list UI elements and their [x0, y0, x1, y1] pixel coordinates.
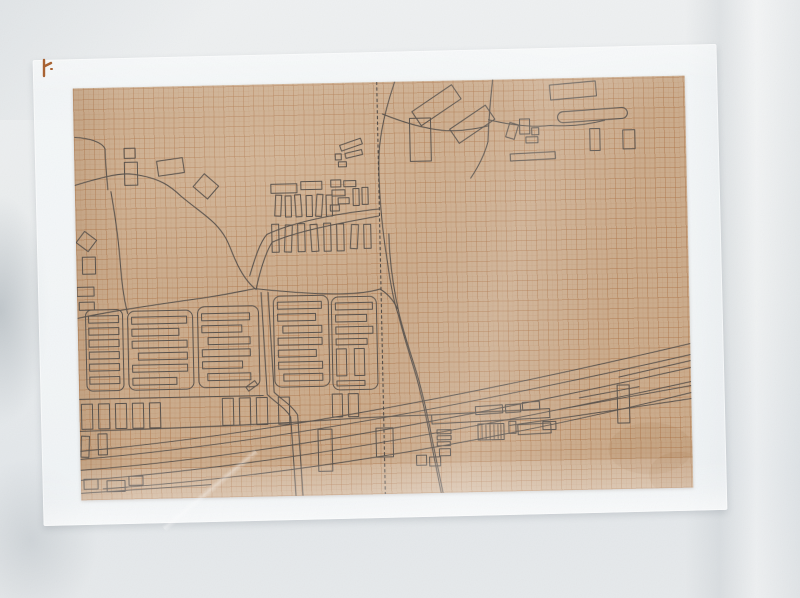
buildings-layer-topright: [409, 80, 636, 163]
cluster2-blocks: [132, 316, 188, 385]
hatched-building: [478, 423, 504, 440]
dashed-fold-line: [377, 82, 386, 494]
cluster3-blocks: [202, 313, 251, 381]
cluster1-blocks: [89, 316, 120, 385]
photo-of-framed-map: [0, 0, 800, 598]
ink-layer: [73, 76, 693, 501]
map-drawing: [73, 76, 693, 501]
platform-band: [432, 408, 550, 424]
rounded-road-end: [557, 107, 628, 123]
cluster4-blocks: [277, 301, 323, 381]
graph-paper-sheet: [73, 76, 693, 501]
cluster5-blocks: [335, 302, 374, 386]
buildings-layer-topmiddle: [270, 138, 371, 252]
buildings-layer-topleft: [74, 146, 221, 310]
paper-stains: [80, 421, 693, 500]
